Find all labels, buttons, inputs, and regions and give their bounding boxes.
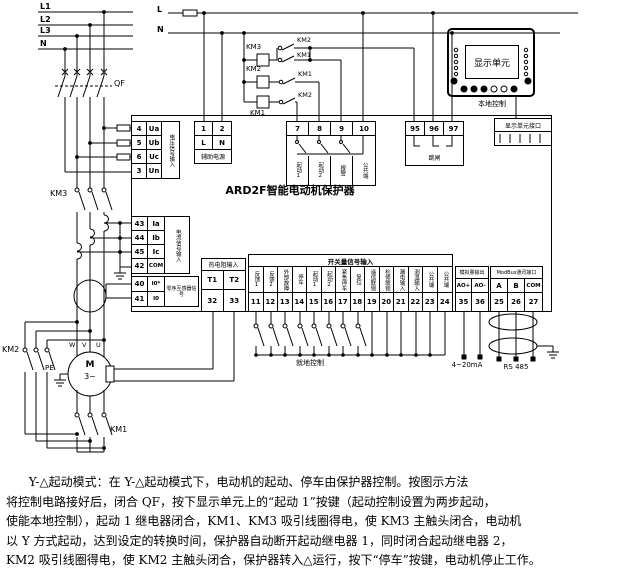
terminal-num: 27: [525, 293, 542, 311]
di-label: 起动1: [307, 267, 322, 293]
terminal-num: 32: [202, 290, 224, 311]
control-l-label: L: [157, 6, 162, 14]
aux-contact-label: KM1: [298, 71, 312, 78]
motor-terminal-u: U: [96, 342, 101, 349]
terminal-num: 16: [322, 293, 337, 311]
terminal-num: 3: [132, 164, 147, 178]
terminal-num: 14: [293, 293, 308, 311]
terminal-num: 15: [307, 293, 322, 311]
temp-header: 热电阻输入: [202, 259, 245, 271]
current-label: 电流信号输入: [165, 217, 189, 273]
terminal-num: 13: [278, 293, 293, 311]
relay-label: 起动1: [287, 156, 309, 185]
terminal-num: 36: [472, 293, 488, 311]
terminal-num: 23: [423, 293, 438, 311]
terminal-sym: Un: [147, 164, 162, 178]
di-label: 停车: [293, 267, 308, 293]
terminal-num: 20: [380, 293, 395, 311]
terminal-sym: COM: [525, 279, 542, 293]
coil-km2-label: KM2: [246, 66, 261, 73]
aux-power-block: 1 2 L N 辅助电源: [194, 121, 232, 164]
km2-contactor: [23, 321, 105, 450]
aux-contact-label: KM2: [298, 92, 312, 99]
temp-input-block: 热电阻输入 T1 T2 32 33: [201, 258, 246, 312]
terminal-num: 97: [444, 122, 463, 136]
relay-contact-zone: [287, 136, 375, 156]
display-interface-connector: [495, 132, 551, 145]
terminal-num: 4: [132, 122, 147, 136]
terminal-sym: T2: [224, 271, 246, 290]
terminal-num: 17: [336, 293, 351, 311]
bus-label-l2: L2: [40, 16, 51, 24]
terminal-num: 9: [331, 122, 353, 136]
display-unit: 显示单元: [447, 28, 535, 97]
coil-km1-label: KM1: [250, 110, 265, 117]
terminal-num: 1: [195, 122, 213, 136]
di-label: 起动2: [322, 267, 337, 293]
terminal-num: 95: [406, 122, 425, 136]
field-control-label: 就地控制: [296, 360, 324, 367]
terminal-sym: Ib: [148, 231, 165, 245]
km1-contactor: [75, 390, 112, 452]
di-label: 反馈1: [249, 267, 264, 293]
terminal-num: 12: [264, 293, 279, 311]
km1-label: KM1: [110, 426, 127, 434]
trip-contact-zone: [406, 136, 463, 150]
relay-output-block: 7 8 9 10 起动1 起动2 报警 公共端: [286, 121, 376, 186]
terminal-num: 33: [224, 290, 246, 311]
description-line: 以 Y 方式起动，达到设定的转换时间，保护器自动断开起动继电器 1，同时闭合起动…: [6, 532, 616, 552]
terminal-num: 18: [351, 293, 366, 311]
pe-label: PE: [45, 365, 54, 372]
terminal-num: 42: [132, 259, 148, 273]
display-interface-label: 显示单元接口: [495, 119, 551, 132]
terminal-num: 44: [132, 231, 148, 245]
leakage-label: 零序互感器信号: [165, 277, 198, 306]
modbus-header: ModBus通讯接口: [491, 267, 542, 279]
terminal-num: 5: [132, 136, 147, 150]
current-transformers: [77, 215, 132, 360]
di-label: 复位: [351, 267, 366, 293]
terminal-sym: Ua: [147, 122, 162, 136]
di-label: 检修联锁: [380, 267, 395, 293]
description-line: 使能本地控制），起动 1 继电器闭合，KM1、KM3 吸引线圈得电，使 KM3 …: [6, 512, 616, 532]
di-label: 公共端: [438, 267, 453, 293]
di-label: 遥信联锁: [365, 267, 380, 293]
terminal-num: 11: [249, 293, 264, 311]
di-label: 公共端: [423, 267, 438, 293]
digital-input-block: 开关量信号输入 反馈1 反馈2 外部故障 停车 起动1 起动2 紧急停车 复位 …: [248, 254, 453, 312]
terminal-num: 21: [394, 293, 409, 311]
km3-contacts: [75, 188, 112, 243]
motor-symbol: [54, 312, 234, 396]
trip-output-block: 95 96 97 跳闸: [405, 121, 464, 166]
description-paragraph: Y-△起动模式：在 Y-△起动模式下，电动机的起动、停车由保护器控制。按图示方法…: [6, 473, 616, 571]
terminal-sym: N: [213, 136, 231, 150]
terminal-num: 43: [132, 217, 148, 231]
di-label: 紧急停车: [336, 267, 351, 293]
terminal-sym: Ia: [148, 217, 165, 231]
wiring-diagram-page: ARD2F智能电动机保护器 电压信号输入 4 Ua 5 Ub 6 Uc 3 Un…: [0, 0, 620, 580]
analog-output-block: 模拟量输出 AO+ AO- 35 36: [455, 266, 489, 312]
motor-phase: 3~: [83, 373, 97, 381]
analog-wires: [462, 312, 482, 359]
bus-label-l1: L1: [40, 3, 51, 11]
terminal-sym: A: [491, 279, 508, 293]
aux-power-label: 辅助电源: [195, 150, 231, 163]
terminal-sym: I0*: [148, 277, 165, 292]
terminal-num: 2: [213, 122, 231, 136]
terminal-sym: L: [195, 136, 213, 150]
di-header: 开关量信号输入: [249, 255, 452, 267]
bus-label-n: N: [40, 40, 47, 48]
relay-label: 公共端: [353, 156, 375, 185]
terminal-sym: T1: [202, 271, 224, 290]
terminal-sym: B: [508, 279, 525, 293]
aux-contact-label: KM1: [297, 52, 311, 59]
terminal-num: 8: [309, 122, 331, 136]
terminal-sym: Ub: [147, 136, 162, 150]
rs485-label: RS 485: [498, 364, 534, 371]
display-screen: 显示单元: [465, 45, 519, 79]
relay-label: 起动2: [309, 156, 331, 185]
terminal-sym: Uc: [147, 150, 162, 164]
terminal-num: 25: [491, 293, 508, 311]
terminal-num: 22: [409, 293, 424, 311]
terminal-sym: AO-: [472, 279, 488, 293]
km3-label: KM3: [50, 190, 67, 198]
analog-range-label: 4~20mA: [447, 362, 487, 369]
description-line: Y-△起动模式：在 Y-△起动模式下，电动机的起动、停车由保护器控制。按图示方法: [6, 473, 616, 493]
terminal-num: 96: [425, 122, 444, 136]
bus-label-l3: L3: [40, 27, 51, 35]
motor-m: M: [83, 361, 97, 370]
aux-contact-label: KM2: [297, 37, 311, 44]
terminal-num: 40: [132, 277, 148, 292]
current-input-block: 电流信号输入 43 Ia 44 Ib 45 Ic 42 COM: [131, 216, 190, 274]
local-control-label: 本地控制: [478, 101, 506, 108]
terminal-num: 10: [353, 122, 375, 136]
di-label: 漏电输入: [394, 267, 409, 293]
km2-label: KM2: [2, 346, 19, 354]
protector-title: ARD2F智能电动机保护器: [200, 182, 380, 198]
terminal-num: 6: [132, 150, 147, 164]
display-interface-block: 显示单元接口: [494, 118, 552, 146]
motor-terminal-v: V: [82, 342, 86, 349]
coil-km3-label: KM3: [246, 44, 261, 51]
analog-header: 模拟量输出: [456, 267, 488, 279]
di-label: 外部故障: [278, 267, 293, 293]
description-line: 将控制电路接好后，闭合 QF，按下显示单元上的“起动 1”按键（起动控制设置为两…: [6, 493, 616, 513]
description-line: KM2 吸引线圈得电，使 KM2 主触头闭合，保护器转入△运行，按下“停车”按键…: [6, 551, 616, 571]
power-bus: [38, 11, 133, 51]
di-switches: [254, 312, 445, 356]
terminal-sym: Ic: [148, 245, 165, 259]
control-n-label: N: [157, 26, 164, 34]
leakage-input-block: 零序互感器信号 40 I0* 41 I0: [131, 276, 199, 307]
terminal-num: 19: [365, 293, 380, 311]
motor-terminal-w: W: [69, 342, 75, 349]
trip-label: 跳闸: [406, 150, 463, 165]
breaker-label: QF: [114, 80, 125, 88]
terminal-num: 45: [132, 245, 148, 259]
voltage-input-block: 电压信号输入 4 Ua 5 Ub 6 Uc 3 Un: [131, 121, 180, 179]
rs485-cable: [489, 312, 559, 361]
modbus-block: ModBus通讯接口 A B COM 25 26 27: [490, 266, 543, 312]
di-label: 测温输入: [409, 267, 424, 293]
terminal-num: 24: [438, 293, 453, 311]
terminal-sym: AO+: [456, 279, 472, 293]
relay-label: 报警: [331, 156, 353, 185]
zero-sequence-ct: [74, 280, 132, 312]
terminal-sym: COM: [148, 259, 165, 273]
terminal-num: 35: [456, 293, 472, 311]
terminal-num: 41: [132, 292, 148, 306]
terminal-num: 26: [508, 293, 525, 311]
terminal-num: 7: [287, 122, 309, 136]
phase-wires: [65, 97, 132, 188]
di-label: 反馈2: [264, 267, 279, 293]
terminal-sym: I0: [148, 292, 165, 306]
voltage-label: 电压信号输入: [162, 122, 179, 178]
qf-breaker-symbol: [55, 12, 112, 97]
